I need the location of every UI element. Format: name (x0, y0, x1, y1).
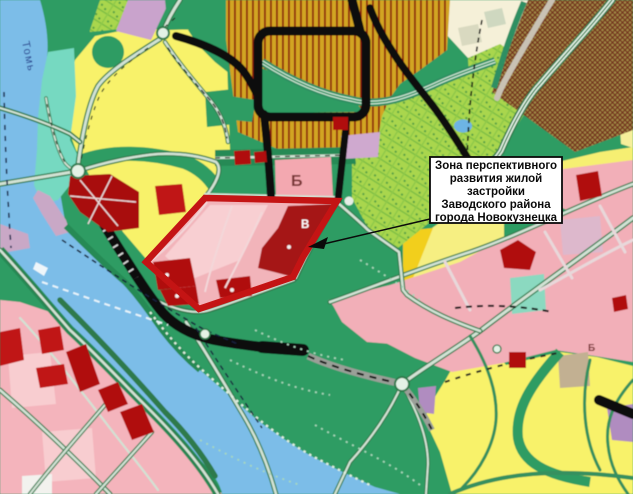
svg-text:Б: Б (291, 173, 303, 190)
svg-text:города Новокузнецка: города Новокузнецка (435, 212, 558, 224)
svg-text:В: В (301, 219, 309, 231)
svg-text:развития жилой: развития жилой (450, 173, 543, 185)
svg-text:Зона перспективного: Зона перспективного (435, 160, 557, 172)
svg-text:Заводского района: Заводского района (441, 199, 551, 211)
svg-text:застройки: застройки (467, 186, 525, 198)
svg-text:Б: Б (588, 343, 595, 354)
